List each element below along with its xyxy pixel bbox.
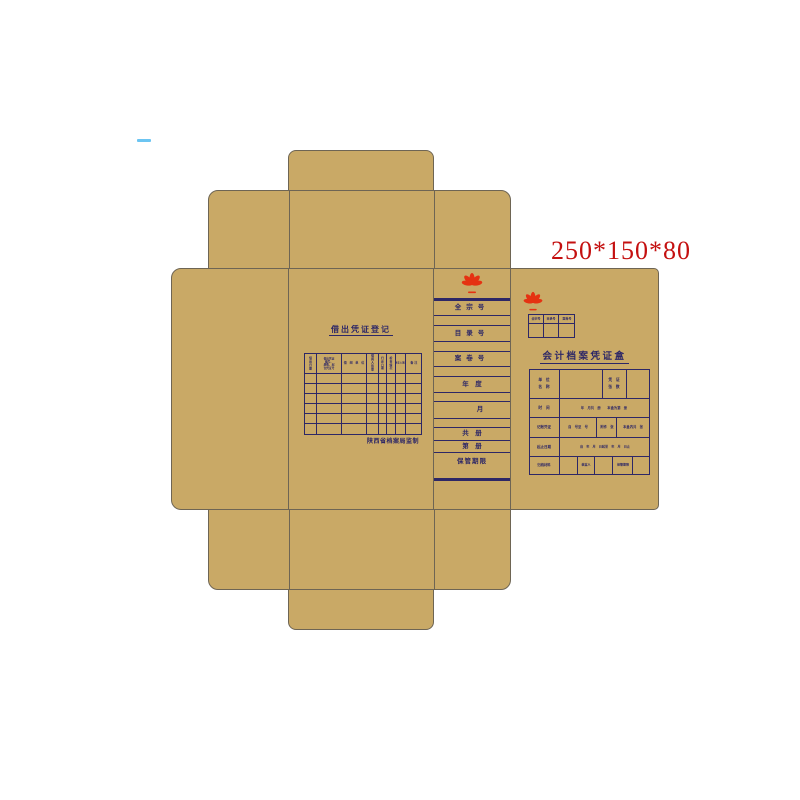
loan-register-panel: 借出凭证登记 借出日期 借出凭证编号、 册数、起讫凭证号 借 阅 单 位 借阅人…: [288, 268, 434, 510]
loan-table-cell: [342, 384, 367, 394]
fold-line: [289, 510, 290, 589]
loan-table-cell: [406, 384, 421, 394]
bottom-band-panel: [208, 509, 511, 590]
loan-table-cell: [317, 424, 342, 434]
cover-title: 会计档案凭证盒: [511, 346, 658, 364]
loan-table-cell: [406, 394, 421, 404]
loan-table-cell: [342, 404, 367, 414]
loan-table-cell: [317, 404, 342, 414]
loan-table-cell: [305, 404, 317, 414]
loan-table-cell: [387, 374, 396, 384]
spine-blank-row: [434, 316, 510, 326]
loan-table-cell: [367, 384, 379, 394]
loan-table-cell: [305, 414, 317, 424]
retention-label-cell: 保管期限: [613, 457, 633, 474]
loan-table-header-cell: 备 注: [406, 354, 421, 374]
voucher-range-cell: 自 号至 号: [560, 418, 597, 437]
left-flap-panel: [171, 268, 289, 510]
loan-table-cell: [305, 384, 317, 394]
flower-logo-icon: [434, 272, 510, 301]
spine-blank-row: [434, 342, 510, 352]
cover-title-text: 会计档案凭证盒: [540, 351, 628, 364]
dimension-label: 250*150*80: [551, 236, 691, 266]
spine-field-row: 年 度: [434, 377, 510, 393]
loan-table-cell: [387, 404, 396, 414]
loan-table-cell: [396, 394, 406, 404]
cover-form-table: 单 位 名 称 凭 证 张 数 时 间 年 月共 册 本盒为第 册 记账凭证 自…: [529, 369, 650, 475]
spine-field-row: 保管期限: [434, 453, 510, 470]
retention-value-cell: [633, 457, 649, 474]
loan-table-cell: [379, 414, 387, 424]
loan-table-cell: [396, 414, 406, 424]
unit-name-label-cell: 单 位 名 称: [530, 370, 560, 398]
box-dieline-sheet: 250*150*80 借出凭证登记 借出日期 借出凭证编号、 册数、起讫凭证号 …: [0, 0, 800, 800]
supervisor-imprint: 陕西省档案局监制: [367, 436, 419, 445]
loan-table-cell: [406, 414, 421, 424]
loan-table-cell: [317, 414, 342, 424]
spine-blank-row: [434, 393, 510, 402]
box-total-cell: 本盒内共 张: [617, 418, 649, 437]
fold-line: [434, 191, 435, 268]
cover-panel: 全宗号 目录号 案卷号 会计档案凭证盒 单 位 名 称 凭 证 张 数 时 间 …: [510, 268, 659, 510]
loan-table-cell: [396, 404, 406, 414]
loan-table-cell: [342, 414, 367, 424]
loan-table-cell: [387, 384, 396, 394]
loan-table-cell: [406, 374, 421, 384]
time-label-cell: 时 间: [530, 399, 560, 417]
loan-table-cell: [367, 424, 379, 434]
corner-mark: [137, 139, 151, 142]
archive-number-header: 案卷号: [559, 315, 574, 324]
loan-table-header-cell: 借阅人 签章: [367, 354, 379, 374]
loan-table-cell: [387, 424, 396, 434]
loan-table-cell: [342, 374, 367, 384]
loan-table-cell: [305, 424, 317, 434]
loan-table-header-cell: 经手人签章: [396, 354, 406, 374]
spine-field-row: 月: [434, 402, 510, 419]
archive-material-value-cell: [560, 457, 578, 474]
loan-table-header-cell: 归还 日期: [379, 354, 387, 374]
packer-value-cell: [595, 457, 613, 474]
loan-table-header-cell: 借出日期: [305, 354, 317, 374]
fold-line: [289, 191, 290, 268]
loan-table-cell: [367, 404, 379, 414]
loan-table-cell: [305, 394, 317, 404]
spine-field-row: 共 册: [434, 428, 510, 441]
loan-table-cell: [379, 374, 387, 384]
bottom-flap-panel: [288, 589, 434, 630]
spine-blank-row: [434, 367, 510, 377]
voucher-count-value-cell: [627, 370, 649, 398]
loan-table-cell: [367, 374, 379, 384]
loan-table-cell: [379, 404, 387, 414]
archive-number-header: 目录号: [544, 315, 559, 324]
loan-table-cell: [379, 384, 387, 394]
top-flap-panel: [288, 150, 434, 191]
loan-table-cell: [406, 424, 421, 434]
loan-table-header-cell: 借出凭证编号、 册数、起讫凭证号: [317, 354, 342, 374]
loan-table-cell: [367, 394, 379, 404]
voucher-range-label-cell: 记账凭证: [530, 418, 560, 437]
spine-panel: 全宗号 目录号 案卷号 年 度 月 共 册 第 册 保管期限: [433, 268, 511, 510]
fold-line: [434, 510, 435, 589]
archive-number-cell: [559, 324, 574, 337]
loan-table-cell: [342, 424, 367, 434]
archive-material-label-cell: 归档材料: [530, 457, 560, 474]
spine-rule-bottom: [434, 478, 510, 481]
loan-table-cell: [379, 424, 387, 434]
time-value-cell: 年 月共 册 本盒为第 册: [560, 399, 649, 417]
loan-table-cell: [396, 374, 406, 384]
unit-name-value-cell: [560, 370, 603, 398]
date-range-label-cell: 起止日期: [530, 438, 560, 456]
loan-table-cell: [379, 394, 387, 404]
archive-number-table: 全宗号 目录号 案卷号: [528, 314, 575, 338]
spine-field-row: 目录号: [434, 326, 510, 342]
loan-table-cell: [396, 424, 406, 434]
loan-register-title: 借出凭证登记: [289, 319, 433, 337]
packer-label-cell: 装盒人: [578, 457, 595, 474]
voucher-count-label-cell: 凭 证 张 数: [603, 370, 627, 398]
loan-table-cell: [387, 394, 396, 404]
loan-table-header-cell: 借 阅 单 位: [342, 354, 367, 374]
loan-table-cell: [367, 414, 379, 424]
loan-table-header-cell: 检查 情况: [387, 354, 396, 374]
loan-table-cell: [317, 374, 342, 384]
loan-table-cell: [317, 394, 342, 404]
archive-number-cell: [529, 324, 544, 337]
loan-register-title-text: 借出凭证登记: [329, 325, 393, 336]
loan-table-cell: [342, 394, 367, 404]
loan-table-cell: [406, 404, 421, 414]
attachment-cell: 附件 张: [597, 418, 617, 437]
top-band-panel: [208, 190, 511, 269]
spine-field-row: 全宗号: [434, 301, 510, 316]
archive-number-header: 全宗号: [529, 315, 544, 324]
loan-table-cell: [396, 384, 406, 394]
spine-field-row: 第 册: [434, 441, 510, 453]
date-range-value-cell: 自 年 月 日起至 年 月 日止: [560, 438, 649, 456]
loan-table: 借出日期 借出凭证编号、 册数、起讫凭证号 借 阅 单 位 借阅人 签章 归还 …: [304, 353, 422, 435]
spine-field-row: 案卷号: [434, 352, 510, 367]
spine-blank-row: [434, 419, 510, 428]
archive-number-cell: [544, 324, 559, 337]
loan-table-cell: [387, 414, 396, 424]
loan-table-cell: [317, 384, 342, 394]
loan-table-cell: [305, 374, 317, 384]
